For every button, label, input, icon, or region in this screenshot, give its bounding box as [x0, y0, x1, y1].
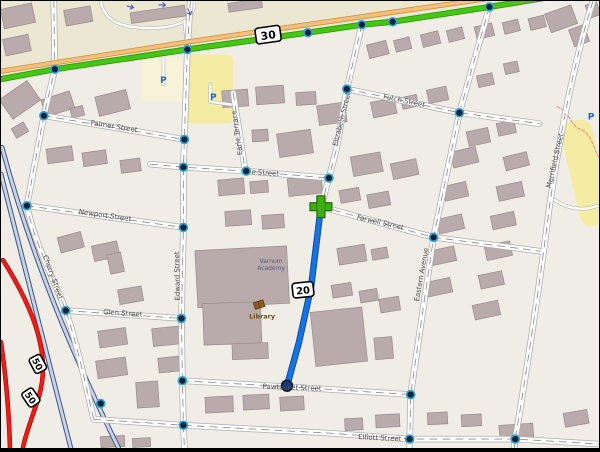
building — [152, 326, 182, 347]
junction-node-icon — [179, 421, 187, 429]
building — [371, 247, 389, 260]
junction-node-icon — [179, 224, 187, 232]
junction-node-icon — [389, 18, 397, 26]
building — [225, 210, 252, 227]
plus-center — [317, 203, 325, 211]
building — [136, 381, 160, 408]
junction-node-icon — [242, 167, 250, 175]
building — [427, 412, 448, 425]
building — [203, 302, 262, 346]
route-shield-20: 20 — [292, 281, 314, 298]
route-shield-30: 30 — [255, 25, 282, 44]
junction-node-icon — [180, 135, 188, 143]
poi-label: Library — [249, 312, 276, 320]
building — [252, 129, 269, 142]
building — [280, 396, 305, 411]
parking-icon: P — [210, 93, 217, 103]
building — [256, 85, 285, 105]
junction-node-icon — [358, 21, 366, 29]
junction-node-icon — [455, 109, 463, 117]
building — [503, 61, 519, 75]
junction-node-icon — [304, 29, 312, 37]
parking-lot-area — [183, 54, 233, 123]
building — [296, 91, 317, 105]
building — [345, 418, 364, 431]
building — [375, 414, 400, 428]
junction-node-icon — [183, 46, 191, 54]
junction-node-icon — [40, 112, 48, 120]
junction-node-icon — [177, 314, 185, 322]
building — [310, 307, 367, 366]
junction-node-icon — [325, 174, 333, 182]
building — [277, 129, 314, 157]
building — [120, 158, 142, 173]
junction-node-icon — [179, 163, 187, 171]
junction-node-icon — [430, 233, 438, 241]
building — [132, 438, 150, 448]
junction-node-icon — [406, 435, 414, 443]
junction-node-icon — [511, 435, 519, 443]
map-canvas[interactable]: 30205050Palmer Streete StreetFutch Stree… — [1, 1, 599, 448]
building — [331, 282, 353, 298]
route-shield-number: 20 — [296, 285, 311, 297]
building — [232, 343, 268, 360]
poi-label: Academy — [257, 265, 285, 272]
route-shield-number: 30 — [260, 28, 277, 43]
junction-node-icon — [62, 307, 70, 315]
junction-node-icon — [407, 391, 415, 399]
building — [218, 178, 245, 196]
junction-node-icon — [51, 65, 59, 73]
building — [98, 327, 128, 348]
building — [250, 180, 269, 193]
building — [82, 150, 108, 167]
street-label: Edward Street — [173, 251, 182, 300]
building — [461, 414, 482, 427]
parking-icon: P — [160, 76, 167, 86]
building — [379, 296, 401, 313]
junction-node-icon — [97, 400, 105, 408]
building — [46, 146, 74, 164]
building — [359, 288, 379, 303]
building — [374, 337, 394, 360]
junction-node-icon — [23, 202, 31, 210]
building — [262, 214, 285, 229]
building — [96, 357, 128, 379]
map-viewport[interactable]: 30205050Palmer Streete StreetFutch Stree… — [0, 0, 600, 452]
building — [205, 396, 234, 413]
building — [243, 394, 270, 410]
poi-label: Varnum — [260, 258, 283, 265]
parking-icon: P — [588, 113, 595, 123]
junction-node-icon — [485, 3, 493, 11]
building — [195, 246, 290, 308]
junction-node-icon — [178, 377, 186, 385]
